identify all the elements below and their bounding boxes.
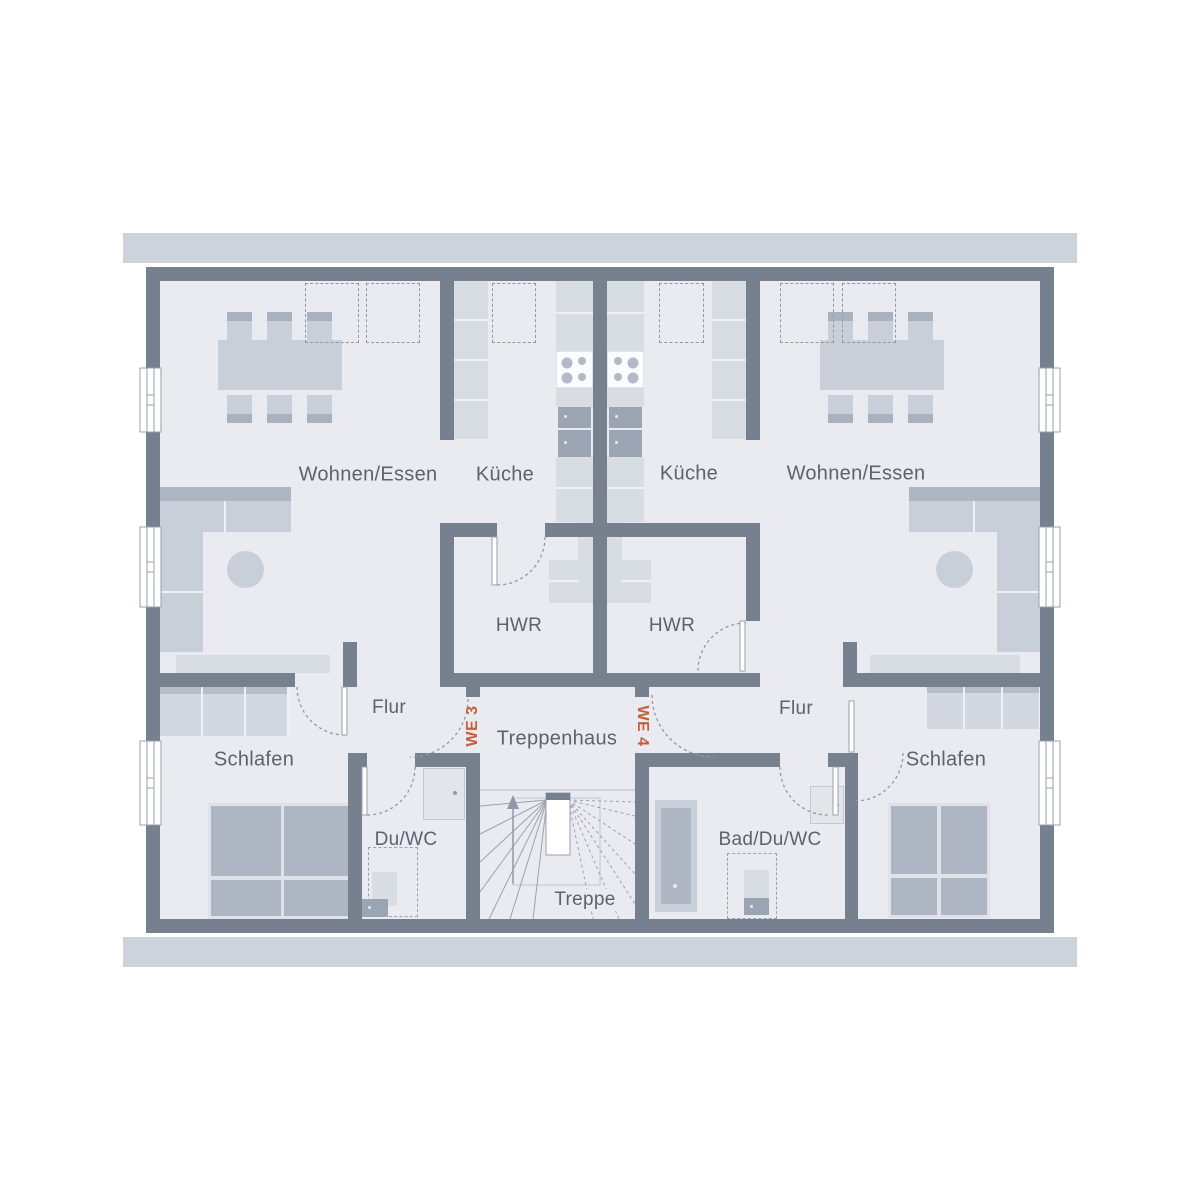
room-label-kitchen-right: Küche xyxy=(660,463,718,486)
room-label-hwr-left: HWR xyxy=(496,615,542,637)
room-label-stairs: Treppe xyxy=(551,889,618,911)
room-label-flur-right: Flur xyxy=(779,698,813,720)
window xyxy=(140,368,161,825)
door-leaf xyxy=(849,701,854,752)
room-label-living-right: Wohnen/Essen xyxy=(787,463,926,486)
window xyxy=(1039,368,1060,825)
door-arc-bedroom-left xyxy=(297,687,345,735)
door-leaf xyxy=(740,621,745,671)
room-label-living-left: Wohnen/Essen xyxy=(299,464,438,487)
stair-newel xyxy=(546,793,570,855)
unit-label-we3: WE 3 xyxy=(464,705,482,746)
plan-annotations xyxy=(0,0,1200,1200)
door-leaf xyxy=(833,767,838,815)
door-arc-duwc xyxy=(367,767,415,815)
room-label-stairhall: Treppenhaus xyxy=(497,728,617,751)
room-label-kitchen-left: Küche xyxy=(476,464,534,487)
room-label-bedroom-right: Schlafen xyxy=(906,749,986,772)
cooktop-burners xyxy=(562,357,639,384)
door-leaf xyxy=(362,767,367,815)
floor-plan: Wohnen/Essen Küche Küche Wohnen/Essen HW… xyxy=(0,0,1200,1200)
door-leaf xyxy=(342,687,347,735)
room-label-bedroom-left: Schlafen xyxy=(214,749,294,772)
unit-label-we4: WE 4 xyxy=(633,705,651,746)
door-arc-bath xyxy=(780,767,828,815)
room-label-flur-left: Flur xyxy=(372,697,406,719)
door-arc-hwr-right xyxy=(698,623,746,671)
door-arc-hwr-left xyxy=(497,537,545,585)
room-label-duwc: Du/WC xyxy=(375,829,438,851)
door-arc-we4 xyxy=(652,695,714,757)
stair-direction-arrow xyxy=(507,795,519,809)
door-arc-bedroom-right xyxy=(855,753,903,801)
door-arc-we3 xyxy=(410,699,468,757)
room-label-bad: Bad/Du/WC xyxy=(718,829,821,851)
door-leaf xyxy=(492,537,497,585)
room-label-hwr-right: HWR xyxy=(649,615,695,637)
